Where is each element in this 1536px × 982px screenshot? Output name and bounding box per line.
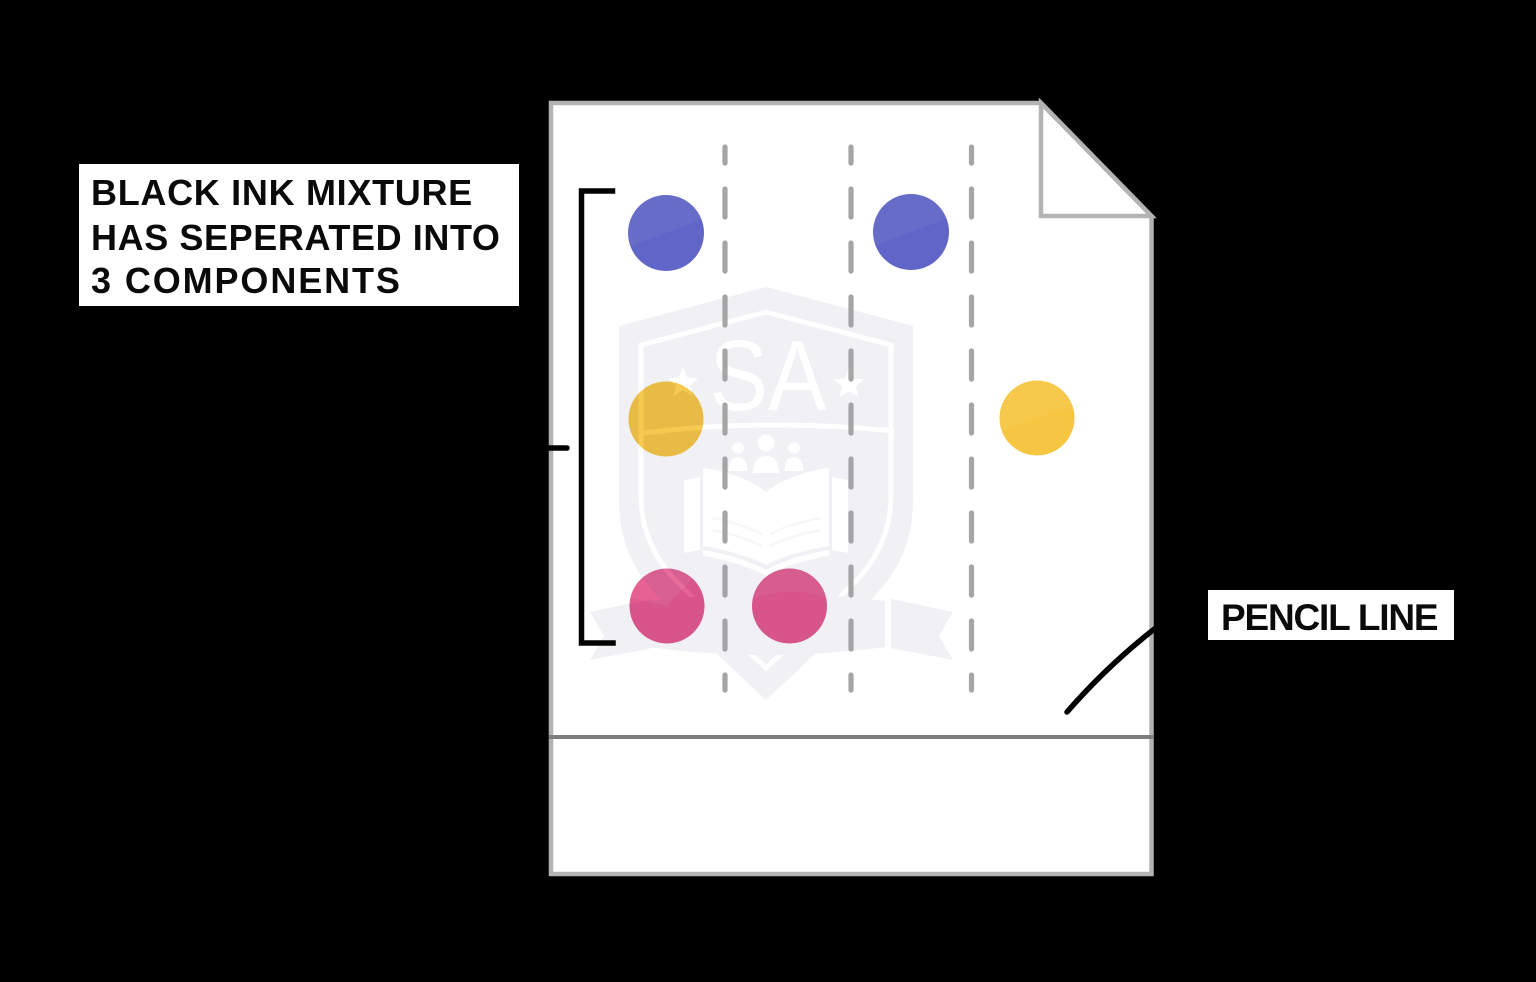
svg-text:HAS SEPERATED INTO: HAS SEPERATED INTO: [91, 217, 501, 258]
svg-text:PENCIL LINE: PENCIL LINE: [1221, 597, 1438, 638]
svg-text:BLACK INK MIXTURE: BLACK INK MIXTURE: [91, 172, 473, 213]
svg-text:3 COMPONENTS: 3 COMPONENTS: [91, 260, 402, 301]
